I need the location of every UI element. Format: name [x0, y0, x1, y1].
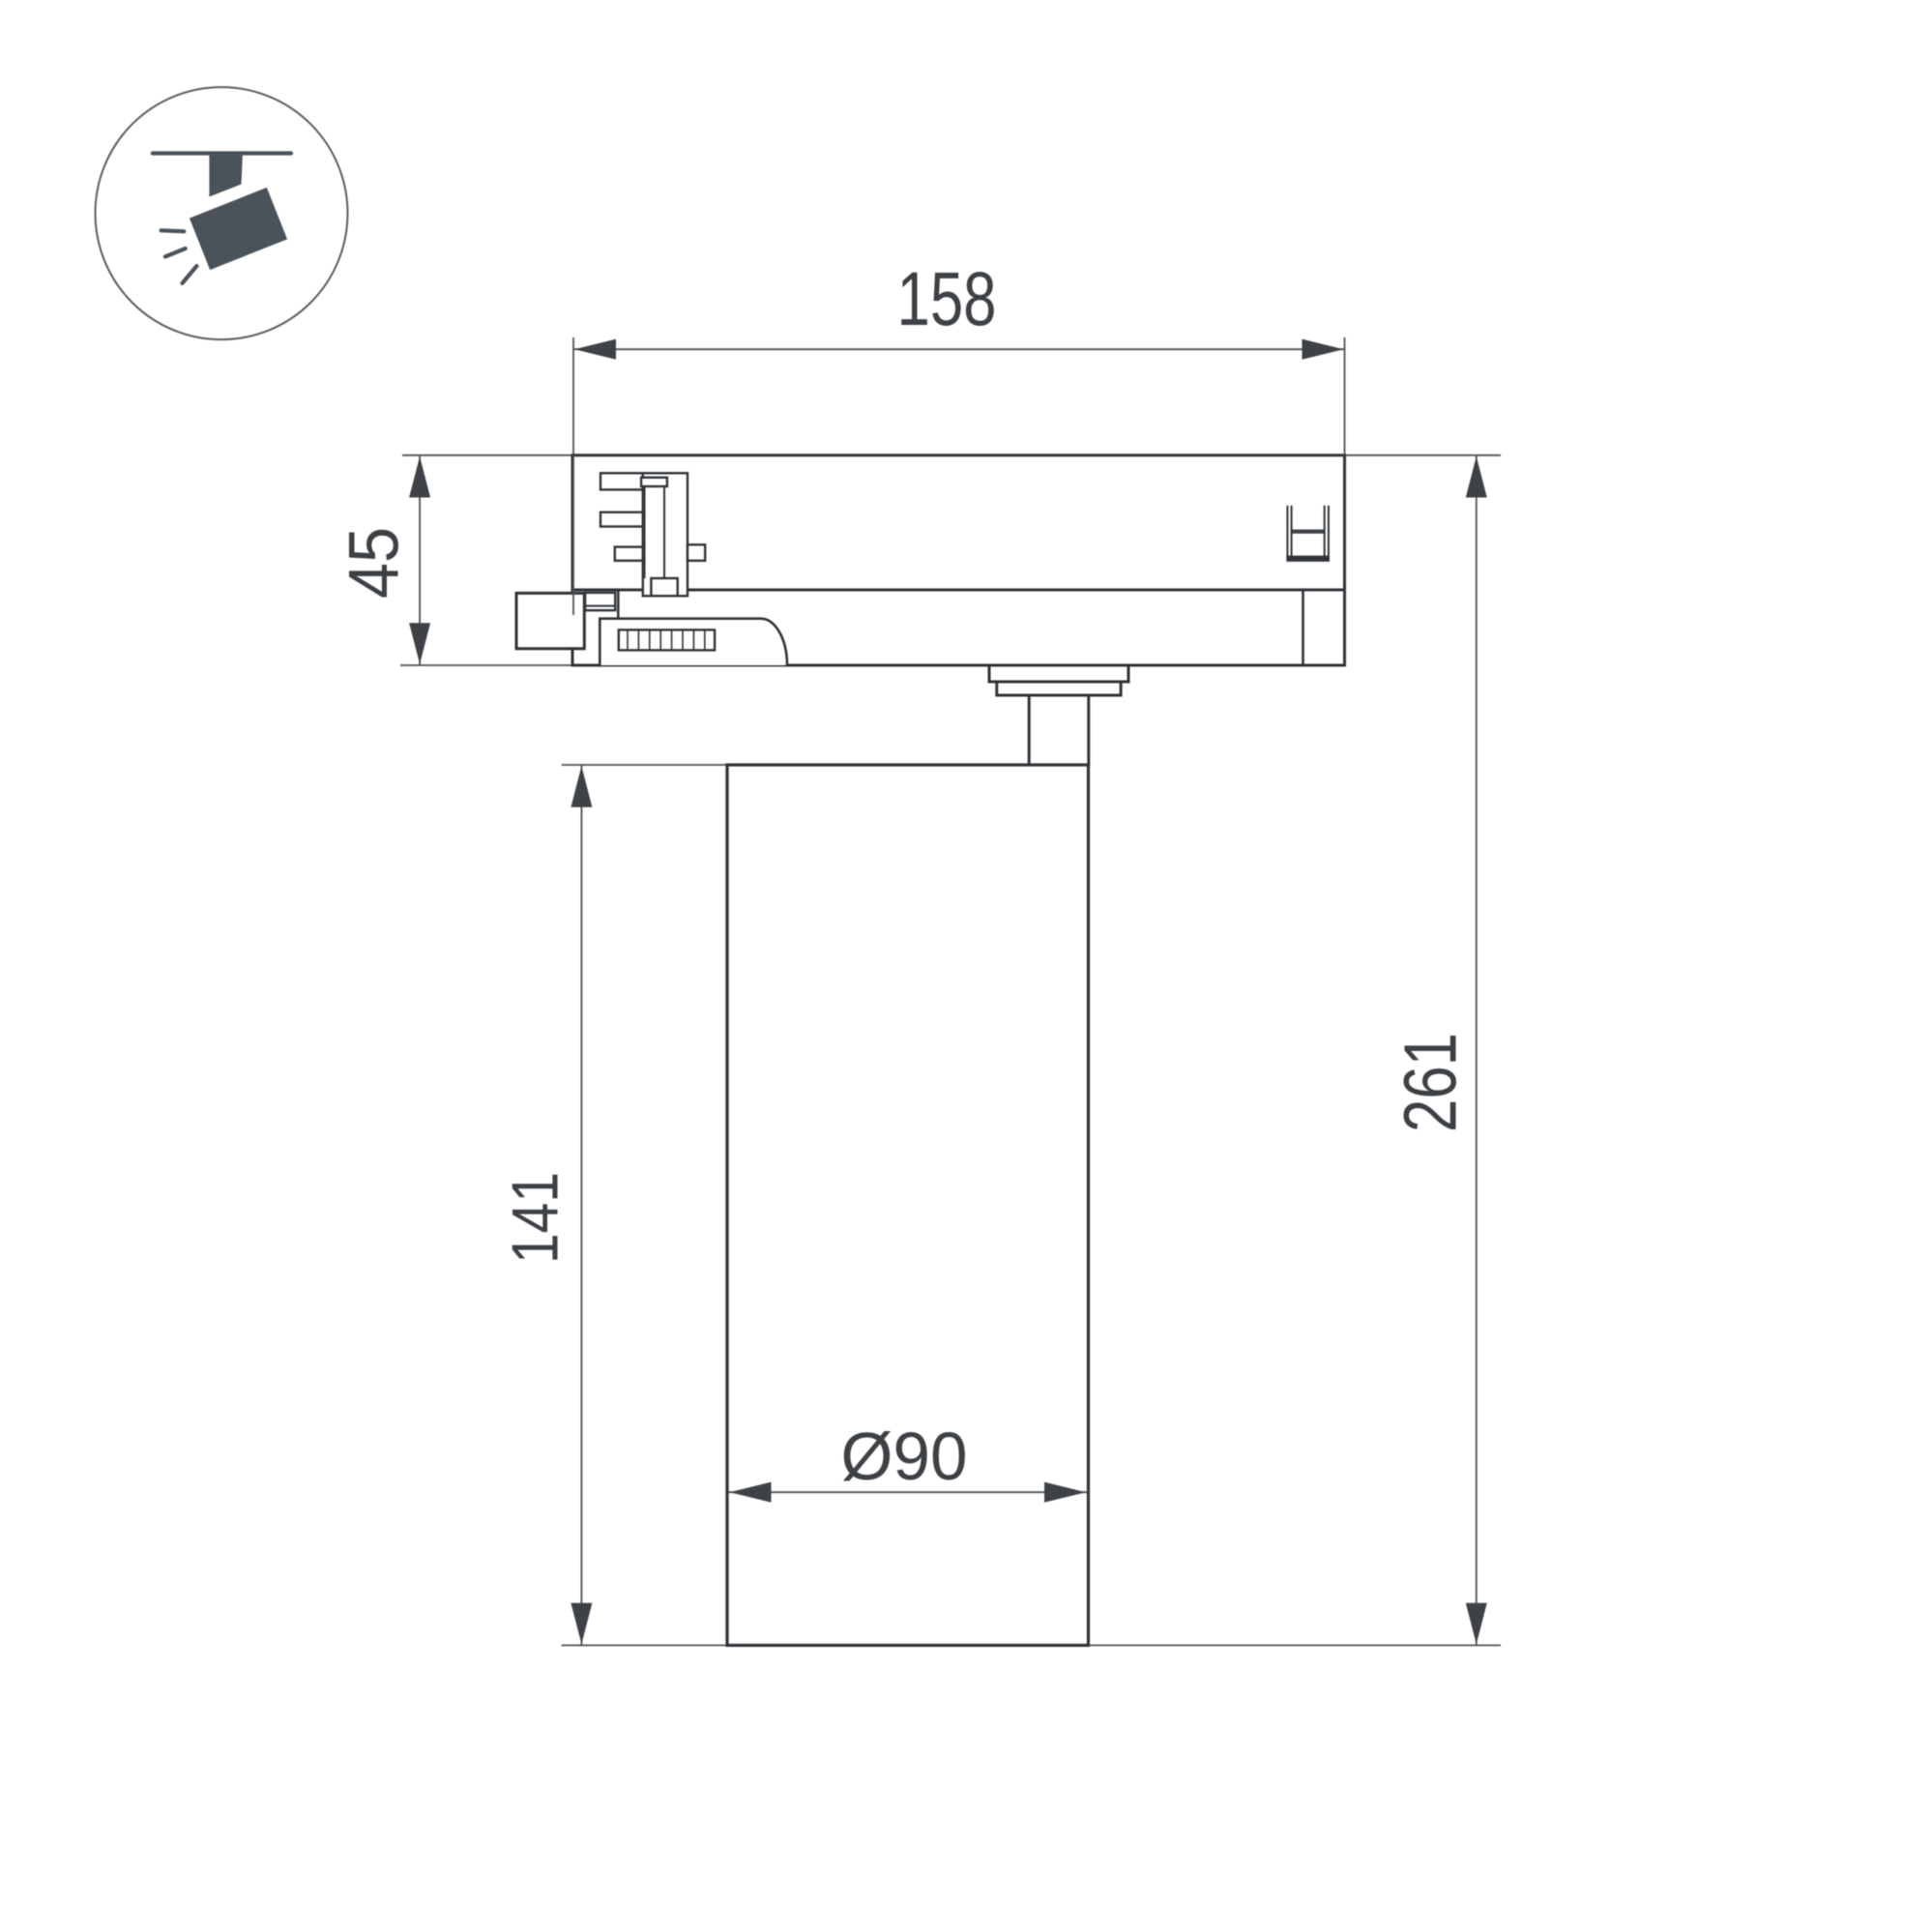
- svg-text:45: 45: [336, 527, 414, 599]
- svg-text:158: 158: [897, 255, 997, 341]
- svg-text:Ø90: Ø90: [841, 1419, 968, 1494]
- svg-text:261: 261: [1390, 1033, 1473, 1132]
- svg-text:141: 141: [499, 1172, 572, 1264]
